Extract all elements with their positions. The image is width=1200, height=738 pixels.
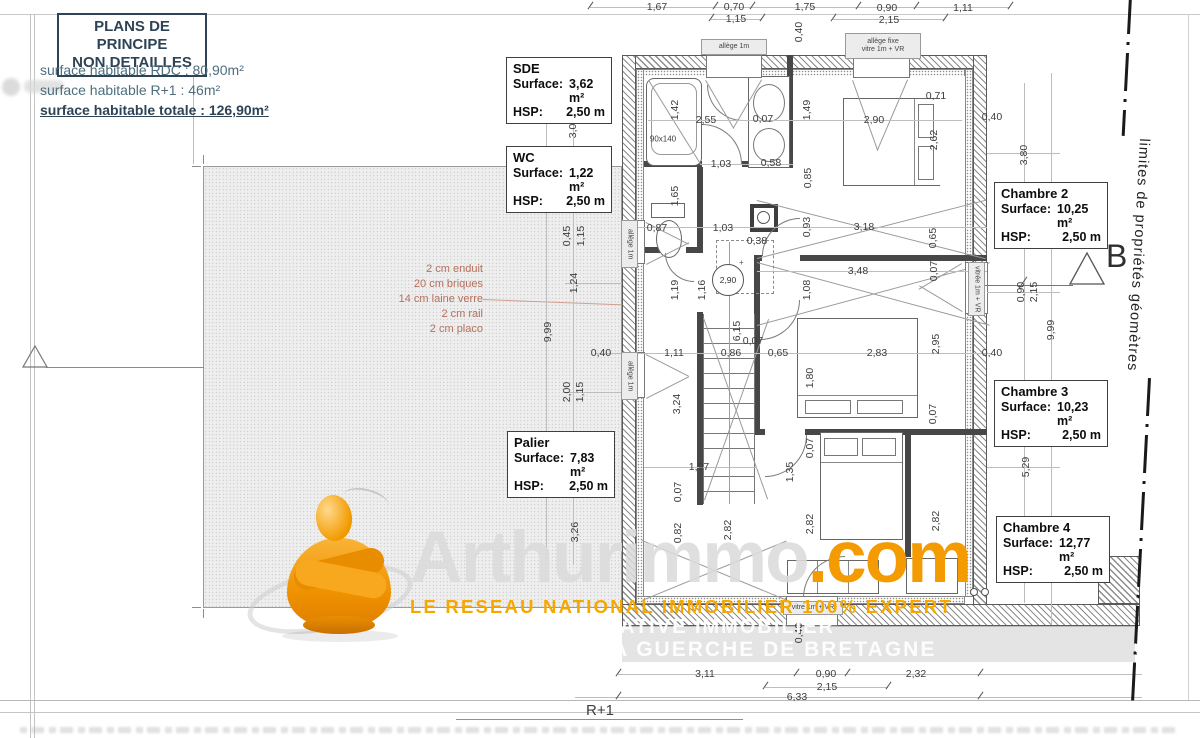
dimension-label: 2,32 — [906, 668, 926, 680]
dim-tick — [845, 669, 851, 677]
dimension-label: 1,11 — [664, 347, 684, 359]
hsp-value: 2,50 m — [566, 105, 605, 119]
surface-label: Surface: — [1001, 400, 1051, 428]
hsp-label: HSP: — [514, 479, 544, 493]
dimension-label: 2,15 — [1028, 282, 1040, 302]
room-box-palier: Palier Surface:7,83 m² HSP:2,50 m — [507, 431, 615, 498]
frame-left-line-1 — [30, 14, 31, 738]
exterior-wall-left — [622, 55, 636, 605]
dimension-label: 1,11 — [953, 2, 973, 14]
note-line: 20 cm briques — [385, 277, 483, 292]
wall-composition-note: 2 cm enduit 20 cm briques 14 cm laine ve… — [385, 262, 483, 337]
dimension-label: 0,07 — [804, 438, 816, 458]
dimension-label: 0,90 — [877, 2, 897, 14]
dimension-label: 0,70 — [724, 1, 744, 13]
surface-r1: surface habitable R+1 : 46m² — [40, 80, 320, 100]
utility-circle — [970, 588, 978, 596]
frame-left-line-2 — [34, 14, 35, 738]
window-label: allège 1m — [621, 352, 638, 400]
dimension-label: 0,65 — [768, 347, 788, 359]
hsp-value: 2,50 m — [1062, 428, 1101, 442]
dim-tick — [763, 682, 769, 690]
ceiling-height-circle: 2,90 — [712, 264, 744, 296]
dimension-label: 1,19 — [669, 280, 681, 300]
surface-value: 10,23 m² — [1057, 400, 1101, 428]
section-a-line — [46, 367, 204, 368]
room-box-chambre3: Chambre 3 Surface:10,23 m² HSP:2,50 m — [994, 380, 1108, 447]
dimension-label: 90x140 — [650, 135, 676, 144]
frame-right-line — [1188, 14, 1189, 700]
hsp-label: HSP: — [1001, 230, 1031, 244]
dim-tick — [616, 692, 622, 700]
property-boundary-label: limites de propriétés géomètres — [1123, 138, 1152, 379]
room-box-chambre2: Chambre 2 Surface:10,25 m² HSP:2,50 m — [994, 182, 1108, 249]
hsp-value: 2,50 m — [1062, 230, 1101, 244]
bed-chambre3-line — [798, 395, 917, 396]
dimension-label: 2,15 — [817, 681, 837, 693]
dim-tick — [794, 669, 800, 677]
dimension-label: 0,07 — [672, 482, 684, 502]
room-name: Chambre 2 — [1001, 186, 1101, 201]
dimension-label: 3,11 — [695, 668, 715, 680]
dimension-label: 2,82 — [930, 511, 942, 531]
dim-line — [757, 271, 987, 272]
dimension-label: 0,38 — [747, 235, 767, 247]
dimension-label: 1,03 — [711, 158, 731, 170]
partition-wall — [697, 167, 703, 248]
property-boundary-line — [1122, 0, 1132, 136]
bed-chambre4-line — [821, 462, 902, 463]
pillow — [824, 438, 858, 456]
note-line: 2 cm rail — [385, 307, 483, 322]
dimension-label: 3,18 — [854, 221, 874, 233]
dimension-label: 3,24 — [671, 394, 683, 414]
partition-wall — [905, 435, 911, 557]
surface-value: 10,25 m² — [1057, 202, 1101, 230]
surface-label: Surface: — [1001, 202, 1051, 230]
dimension-label: 0,07 — [753, 113, 773, 125]
surface-value: 3,62 m² — [569, 77, 605, 105]
partition-wall — [800, 255, 987, 261]
circle-plus-mark: + — [739, 258, 744, 267]
dim-tick — [1008, 2, 1014, 10]
surface-label: Surface: — [513, 166, 563, 194]
duct-circle — [757, 211, 770, 224]
hsp-label: HSP: — [513, 105, 543, 119]
pillow — [862, 438, 896, 456]
insulation-right — [965, 69, 973, 597]
dimension-label: 9,99 — [1045, 320, 1057, 340]
corner-tick — [192, 607, 201, 608]
window-label: vitrée 1m + VR — [968, 262, 985, 316]
dimension-label: 6,15 — [731, 321, 743, 341]
ground-strip — [622, 626, 1135, 662]
dimension-label: 2,15 — [879, 14, 899, 26]
dim-tick — [713, 2, 719, 10]
cutoff-text-strip — [20, 727, 1180, 733]
surface-label: Surface: — [513, 77, 563, 105]
dimension-label: 5,29 — [1020, 457, 1032, 477]
roof-below-area — [203, 166, 622, 608]
dimension-label: 2,62 — [928, 130, 940, 150]
dimension-label: 1,15 — [726, 13, 746, 25]
ceiling-height-value: 2,90 — [720, 275, 737, 285]
dimension-label: 0,40 — [982, 111, 1002, 123]
dim-tick — [750, 2, 756, 10]
room-name: Chambre 4 — [1003, 520, 1103, 535]
dimension-label: 1,15 — [575, 226, 587, 246]
dimension-label: 2,90 — [864, 114, 884, 126]
dimension-label: 1,97 — [689, 461, 709, 473]
dim-tick — [886, 682, 892, 690]
dimension-label: 0,58 — [761, 157, 781, 169]
closet — [906, 558, 958, 594]
dimension-label: 0,45 — [561, 226, 573, 246]
surface-label: Surface: — [514, 451, 564, 479]
pillow — [805, 400, 851, 414]
room-box-sde: SDE Surface:3,62 m² HSP:2,50 m — [506, 57, 612, 124]
surface-rdc: surface habitable RDC : 80,90m² — [40, 60, 320, 80]
section-a-triangle — [22, 345, 48, 368]
dimension-label: 1,15 — [574, 382, 586, 402]
note-line: 2 cm enduit — [385, 262, 483, 277]
mascot-shadow — [282, 630, 398, 642]
floor-plan-page: PLANS DE PRINCIPE NON DETAILLES surface … — [0, 0, 1200, 738]
hsp-label: HSP: — [513, 194, 543, 208]
dimension-label: 1,42 — [669, 100, 681, 120]
plan-title-line1: PLANS DE PRINCIPE — [65, 18, 199, 54]
dimension-label: 1,35 — [784, 462, 796, 482]
surface-summary: surface habitable RDC : 80,90m² surface … — [40, 60, 320, 120]
utility-circle — [981, 588, 989, 596]
section-b-label: B — [1106, 238, 1127, 275]
room-name: SDE — [513, 61, 605, 76]
dim-tick — [978, 669, 984, 677]
dimension-label: 0,87 — [647, 222, 667, 234]
floor-label: R+1 — [500, 702, 700, 719]
dim-tick — [588, 2, 594, 10]
room-name: WC — [513, 150, 605, 165]
window-label: allège 1m — [621, 220, 638, 268]
window-label: allège fixevitre 1m + VR — [845, 33, 921, 59]
dimension-label: 3,48 — [848, 265, 868, 277]
dim-tick — [856, 2, 862, 10]
exterior-wall-bottom — [622, 604, 1140, 626]
corner-tick — [192, 166, 201, 167]
corner-tick — [203, 609, 204, 618]
hsp-label: HSP: — [1003, 564, 1033, 578]
dimension-label: 1,03 — [713, 222, 733, 234]
dimension-label: 1,67 — [647, 1, 667, 13]
dimension-label: 0,40 — [793, 623, 805, 643]
hsp-value: 2,50 m — [569, 479, 608, 493]
dimension-label: 0,82 — [672, 523, 684, 543]
dimension-label: 0,65 — [927, 228, 939, 248]
dimension-label: 3,80 — [1018, 145, 1030, 165]
corner-tick — [203, 155, 204, 164]
surface-label: Surface: — [1003, 536, 1053, 564]
dimension-label: 1,65 — [669, 186, 681, 206]
surface-total: surface habitable totale : 126,90m² — [40, 102, 269, 118]
floor-label-underline — [456, 719, 743, 720]
dimension-label: 0,40 — [793, 22, 805, 42]
room-name: Palier — [514, 435, 608, 450]
dim-tick — [978, 692, 984, 700]
bed-chambre2-line — [914, 99, 915, 185]
dimension-label: 0,40 — [982, 347, 1002, 359]
pillow — [857, 400, 903, 414]
note-line: 2 cm placo — [385, 322, 483, 337]
dim-line — [575, 697, 1142, 698]
dimension-label: 0,86 — [721, 347, 741, 359]
pillow — [918, 146, 934, 180]
dimension-label: 2,82 — [722, 520, 734, 540]
insulation-left — [636, 69, 644, 597]
window — [706, 55, 762, 78]
dimension-label: 2,95 — [930, 334, 942, 354]
dimension-label: 2,55 — [696, 114, 716, 126]
exterior-wall-top — [622, 55, 987, 69]
dimension-label: 0,07 — [928, 261, 940, 281]
dimension-label: 3,26 — [569, 522, 581, 542]
dimension-label: 1,80 — [804, 368, 816, 388]
dimension-label: 0,07 — [927, 404, 939, 424]
frame-bottom-line-1 — [0, 700, 1200, 701]
dimension-label: 0,07 — [743, 335, 763, 347]
surface-value: 7,83 m² — [570, 451, 608, 479]
room-box-wc: WC Surface:1,22 m² HSP:2,50 m — [506, 146, 612, 213]
window-label: allège 1m — [701, 39, 767, 55]
dimension-label: 0,90 — [1015, 282, 1027, 302]
photo-watermark — [2, 78, 20, 96]
dimension-label: 1,08 — [801, 280, 813, 300]
window-label: vitre 1m + VR — [783, 601, 843, 615]
hsp-label: HSP: — [1001, 428, 1031, 442]
dimension-label: 2,82 — [804, 514, 816, 534]
hsp-value: 2,50 m — [1064, 564, 1103, 578]
dimension-label: 0,90 — [816, 668, 836, 680]
surface-value: 1,22 m² — [569, 166, 605, 194]
dimension-label: 1,49 — [801, 100, 813, 120]
note-line: 14 cm laine verre — [385, 292, 483, 307]
dimension-label: 0,85 — [802, 168, 814, 188]
dimension-label: 0,71 — [926, 90, 946, 102]
exterior-wall-right — [973, 55, 987, 605]
dim-tick — [914, 2, 920, 10]
dimension-label: 2,83 — [867, 347, 887, 359]
dimension-label: 2,00 — [561, 382, 573, 402]
dim-tick — [616, 669, 622, 677]
hsp-value: 2,50 m — [566, 194, 605, 208]
property-boundary-line — [1131, 378, 1151, 708]
dimension-label: 6,33 — [787, 691, 807, 703]
closet-divider — [848, 561, 849, 593]
partition-wall — [754, 429, 765, 435]
section-b-triangle — [1068, 251, 1106, 286]
dimension-label: 1,75 — [795, 1, 815, 13]
dimension-label: 1,16 — [696, 280, 708, 300]
dimension-label: 0,40 — [591, 347, 611, 359]
dimension-label: 9,99 — [542, 322, 554, 342]
dimension-label: 0,93 — [801, 217, 813, 237]
mascot-base — [303, 616, 375, 634]
surface-value: 12,77 m² — [1059, 536, 1103, 564]
dimension-label: 1,24 — [568, 273, 580, 293]
room-name: Chambre 3 — [1001, 384, 1101, 399]
room-box-chambre4: Chambre 4 Surface:12,77 m² HSP:2,50 m — [996, 516, 1110, 583]
